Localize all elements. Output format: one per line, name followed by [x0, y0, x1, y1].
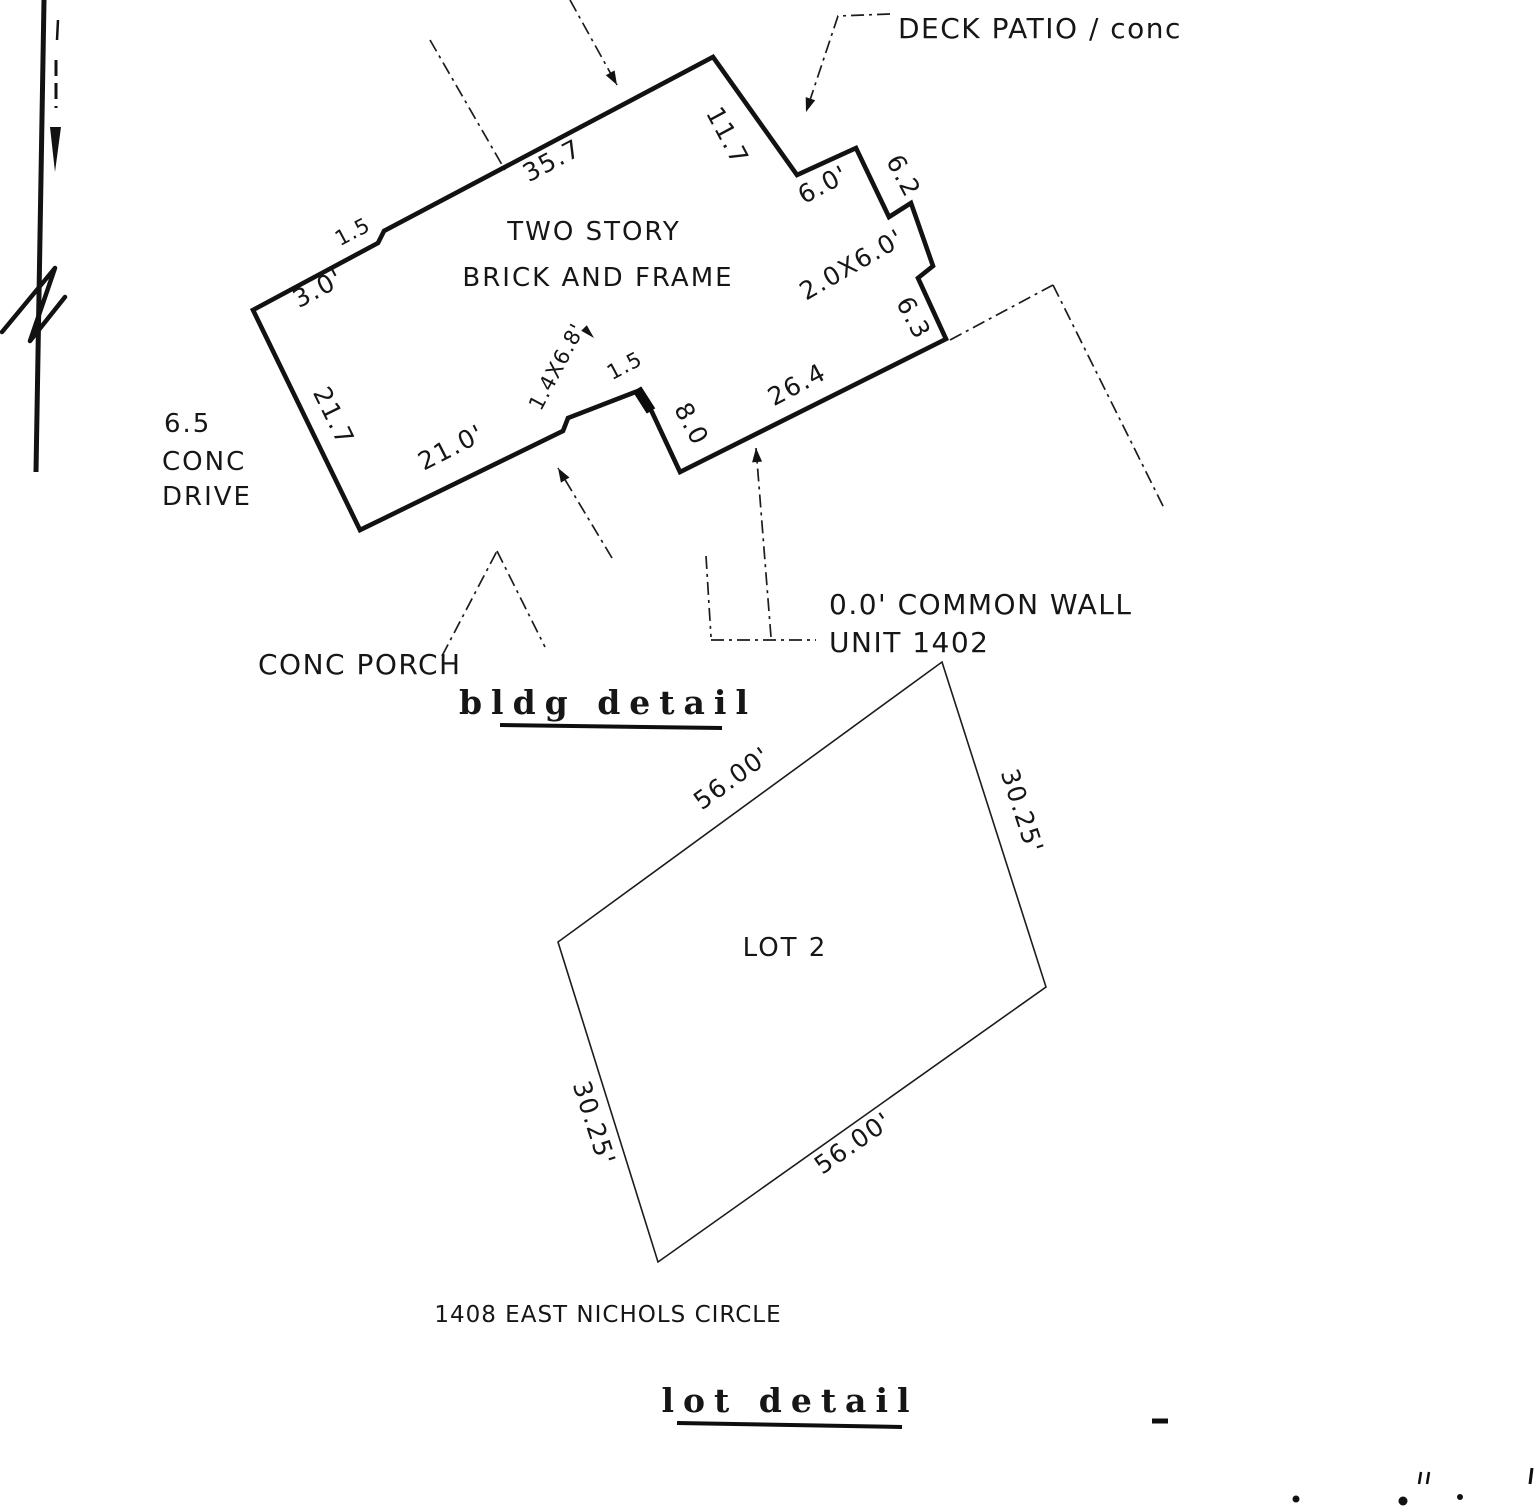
dim-common-side: 8.0 — [668, 398, 714, 451]
dim-deck-step: 6.0' — [793, 159, 853, 209]
fragment-quote-marks — [1419, 1472, 1429, 1484]
common-wall-bar — [637, 389, 651, 411]
arrowhead-deck-patio — [806, 97, 816, 112]
fragment-glyph-1 — [1293, 1496, 1300, 1503]
address-label: 1408 EAST NICHOLS CIRCLE — [434, 1302, 781, 1328]
lot-name-label: LOT 2 — [743, 933, 828, 963]
dim-front-corner: 3.0' — [288, 263, 348, 313]
north-arrow-tick — [57, 20, 58, 40]
north-arrow — [2, 0, 65, 472]
conc-porch-label: CONC PORCH — [258, 648, 462, 681]
dim-deck-side: 6.2 — [880, 150, 926, 203]
north-arrow-line — [36, 0, 44, 472]
survey-drawing-canvas: DECK PATIO / conc TWO STORY BRICK AND FR… — [0, 0, 1536, 1506]
adjacent-unit-edge-left — [950, 285, 1053, 340]
leader-porch-b — [497, 551, 545, 647]
lot-dim-bottom: 56.00' — [809, 1106, 897, 1180]
building — [253, 57, 946, 530]
lot-dim-right: 30.25' — [995, 765, 1050, 857]
dim-bump-out: 2.0X6.0' — [794, 223, 909, 306]
north-arrow-flag — [50, 127, 61, 172]
fragment-glyph-3 — [1457, 1494, 1463, 1500]
north-letter-n-strokes — [2, 268, 65, 341]
bldg-detail-title: bldg detail — [459, 683, 757, 722]
plat-survey-sketch: DECK PATIO / conc TWO STORY BRICK AND FR… — [0, 0, 1536, 1506]
fragment-glyph-2 — [1399, 1497, 1408, 1506]
conc-drive-word1: CONC — [162, 447, 246, 477]
lot-dim-left: 30.25' — [567, 1077, 622, 1169]
adjacent-unit-outline — [950, 285, 1165, 510]
dim-common-offset: 1.5 — [603, 347, 646, 385]
building-label-line1: TWO STORY — [506, 217, 680, 247]
leader-dashdot-upper-left — [430, 40, 505, 170]
bldg-detail-underline — [500, 725, 722, 728]
scan-fragments — [1152, 1421, 1532, 1506]
building-label-line2: BRICK AND FRAME — [462, 263, 733, 293]
deck-patio-label: DECK PATIO / conc — [898, 12, 1182, 45]
dim-porch-size: 1.4X6.8' — [524, 319, 590, 414]
dim-front-jog: 1.5 — [331, 213, 374, 251]
arrowhead-common-wall — [752, 448, 762, 462]
dim-bottom-wall: 21.0' — [413, 419, 489, 477]
arrowhead-top — [606, 70, 617, 85]
adjacent-unit-edge-right — [1053, 285, 1165, 510]
lot-dim-top: 56.00' — [688, 741, 776, 816]
leader-porch-arrow — [558, 468, 612, 558]
common-wall-label-line1: 0.0' COMMON WALL — [829, 588, 1132, 621]
fragment-right-edge — [1530, 1468, 1532, 1484]
conc-drive-width: 6.5 — [164, 409, 211, 439]
leader-porch-a — [442, 551, 497, 656]
conc-drive-word2: DRIVE — [162, 482, 252, 512]
leader-deck-patio — [806, 14, 890, 112]
lot-detail-underline — [677, 1423, 902, 1427]
lot-detail-title: lot detail — [661, 1381, 918, 1420]
leader-common-wall-vertical — [706, 556, 711, 637]
arrowhead-porch — [558, 468, 570, 483]
common-wall-label-line2: UNIT 1402 — [829, 626, 989, 659]
leader-common-wall-arrow — [756, 448, 771, 637]
leader-arrow-top — [570, 0, 617, 85]
dim-upper-right-wall: 11.7 — [700, 102, 755, 170]
building-outline — [253, 57, 946, 530]
